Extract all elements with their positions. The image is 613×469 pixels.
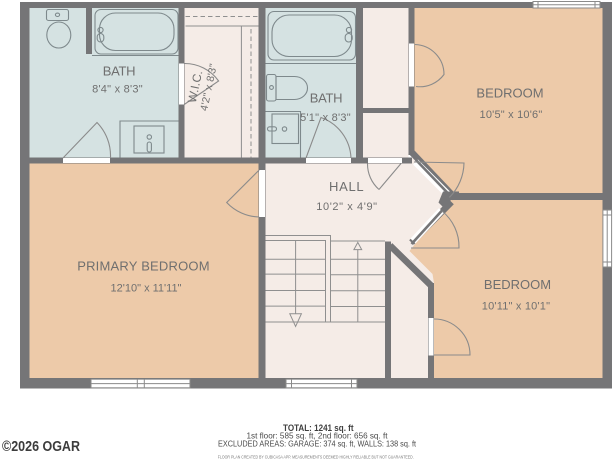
svg-text:BEDROOM: BEDROOM xyxy=(476,86,543,101)
svg-text:10'11" x 10'1": 10'11" x 10'1" xyxy=(482,301,550,313)
svg-text:PRIMARY BEDROOM: PRIMARY BEDROOM xyxy=(77,259,210,274)
svg-text:BATH: BATH xyxy=(103,64,136,79)
svg-text:10'5" x 10'6": 10'5" x 10'6" xyxy=(480,109,543,121)
svg-text:12'10" x 11'11": 12'10" x 11'11" xyxy=(111,283,182,295)
svg-text:10'2" x 4'9": 10'2" x 4'9" xyxy=(316,201,377,213)
svg-text:BEDROOM: BEDROOM xyxy=(484,277,551,292)
svg-text:EXCLUDED AREAS: GARAGE: 374 sq: EXCLUDED AREAS: GARAGE: 374 sq. ft, WALL… xyxy=(218,439,417,449)
svg-text:8'4" x 8'3": 8'4" x 8'3" xyxy=(92,84,143,96)
svg-text:HALL: HALL xyxy=(329,179,364,194)
svg-text:BATH: BATH xyxy=(310,91,343,106)
svg-text:©2026 OGAR: ©2026 OGAR xyxy=(2,439,80,455)
svg-text:FLOOR PLAN CREATED BY CUBICASA: FLOOR PLAN CREATED BY CUBICASA APP. MEAS… xyxy=(218,455,414,460)
svg-text:5'1" x 8'3": 5'1" x 8'3" xyxy=(300,112,351,124)
